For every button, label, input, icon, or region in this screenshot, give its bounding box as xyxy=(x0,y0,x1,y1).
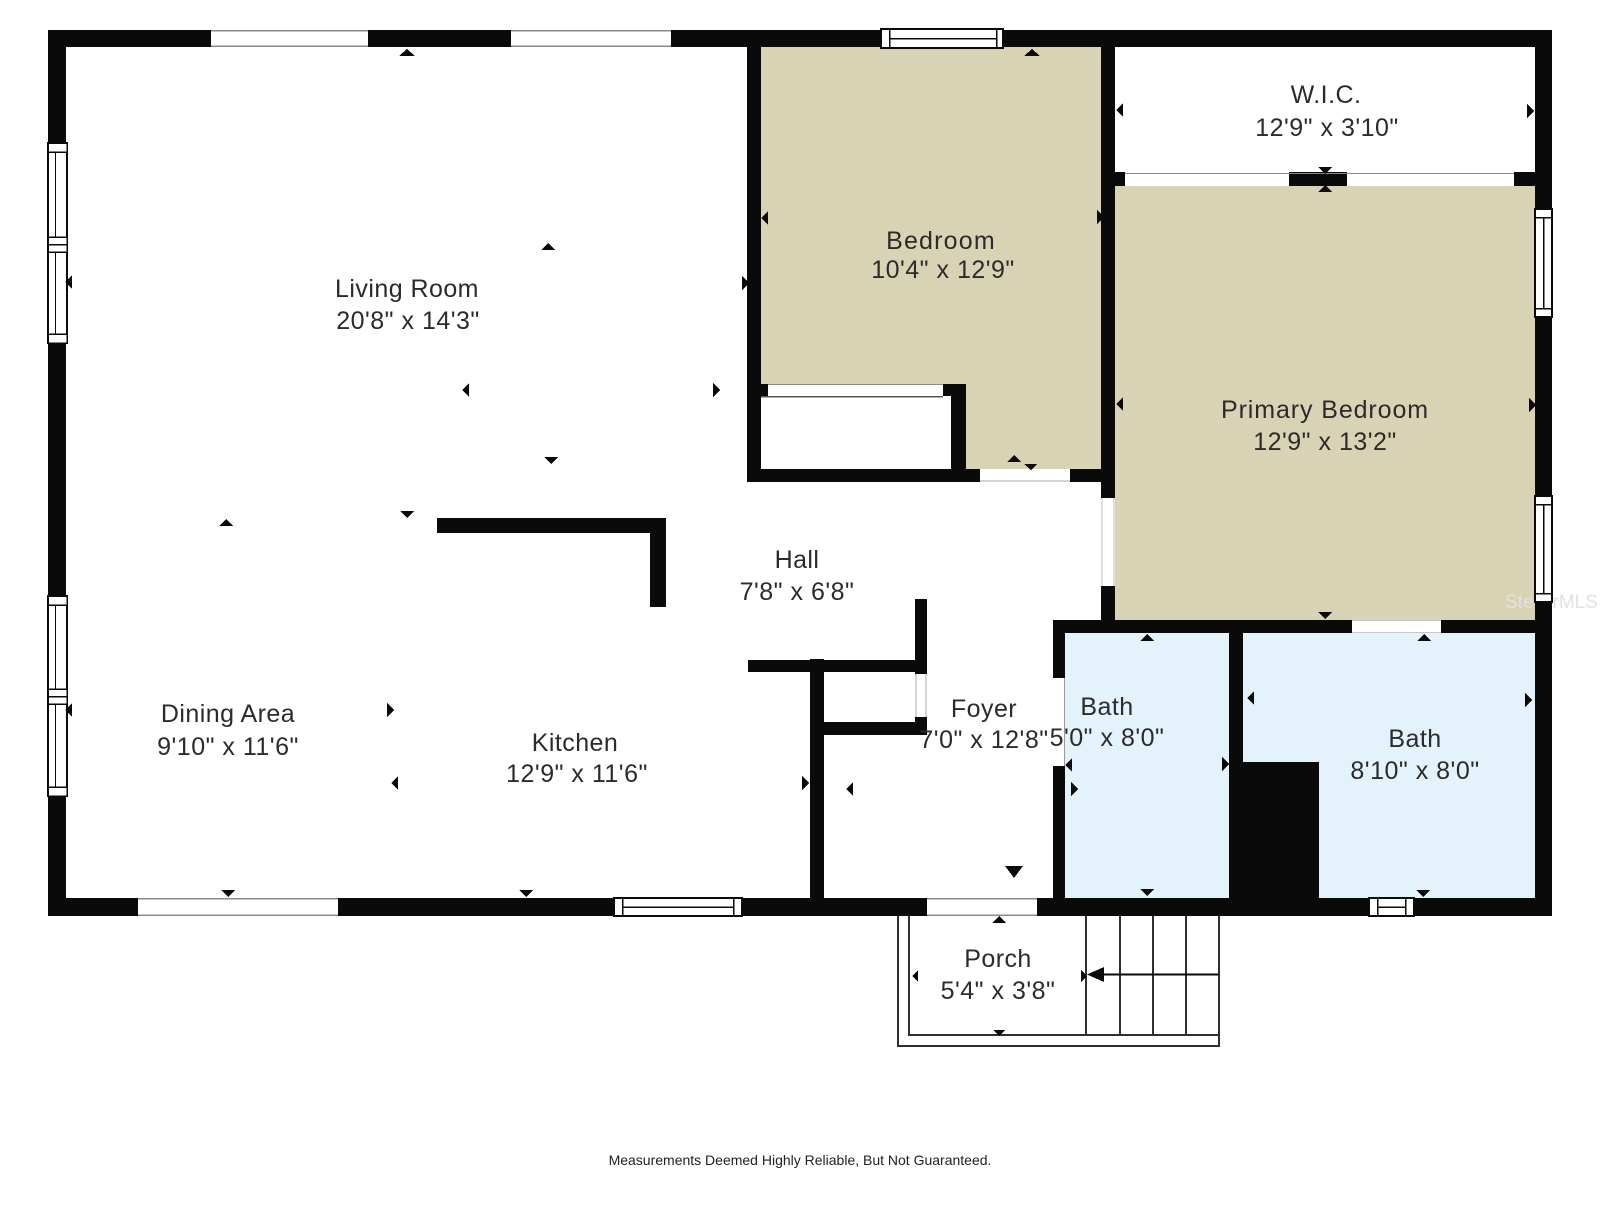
svg-text:Living Room: Living Room xyxy=(335,275,479,303)
svg-text:12'9" x 11'6": 12'9" x 11'6" xyxy=(506,760,648,788)
svg-text:Measurements Deemed Highly Rel: Measurements Deemed Highly Reliable, But… xyxy=(609,1152,992,1168)
svg-text:5'0" x 8'0": 5'0" x 8'0" xyxy=(1050,724,1165,752)
svg-text:10'4" x 12'9": 10'4" x 12'9" xyxy=(871,256,1015,284)
svg-text:8'10" x 8'0": 8'10" x 8'0" xyxy=(1350,757,1479,785)
svg-text:9'10" x 11'6": 9'10" x 11'6" xyxy=(157,733,299,761)
svg-text:Bath: Bath xyxy=(1388,725,1441,753)
svg-text:Bath: Bath xyxy=(1080,693,1133,721)
svg-text:7'0" x 12'8": 7'0" x 12'8" xyxy=(919,726,1048,754)
svg-text:12'9" x 3'10": 12'9" x 3'10" xyxy=(1255,114,1399,142)
svg-text:Hall: Hall xyxy=(775,546,820,574)
svg-text:Bedroom: Bedroom xyxy=(886,227,996,255)
svg-text:5'4" x 3'8": 5'4" x 3'8" xyxy=(941,977,1056,1005)
svg-text:Kitchen: Kitchen xyxy=(532,729,619,757)
svg-text:20'8" x 14'3": 20'8" x 14'3" xyxy=(336,307,480,335)
svg-text:12'9" x 13'2": 12'9" x 13'2" xyxy=(1253,428,1397,456)
svg-text:Dining Area: Dining Area xyxy=(161,700,295,728)
svg-text:Porch: Porch xyxy=(964,945,1032,973)
svg-text:Foyer: Foyer xyxy=(951,695,1017,723)
svg-text:Primary Bedroom: Primary Bedroom xyxy=(1221,396,1429,424)
svg-text:7'8" x 6'8": 7'8" x 6'8" xyxy=(740,578,855,606)
svg-text:W.I.C.: W.I.C. xyxy=(1291,81,1362,109)
